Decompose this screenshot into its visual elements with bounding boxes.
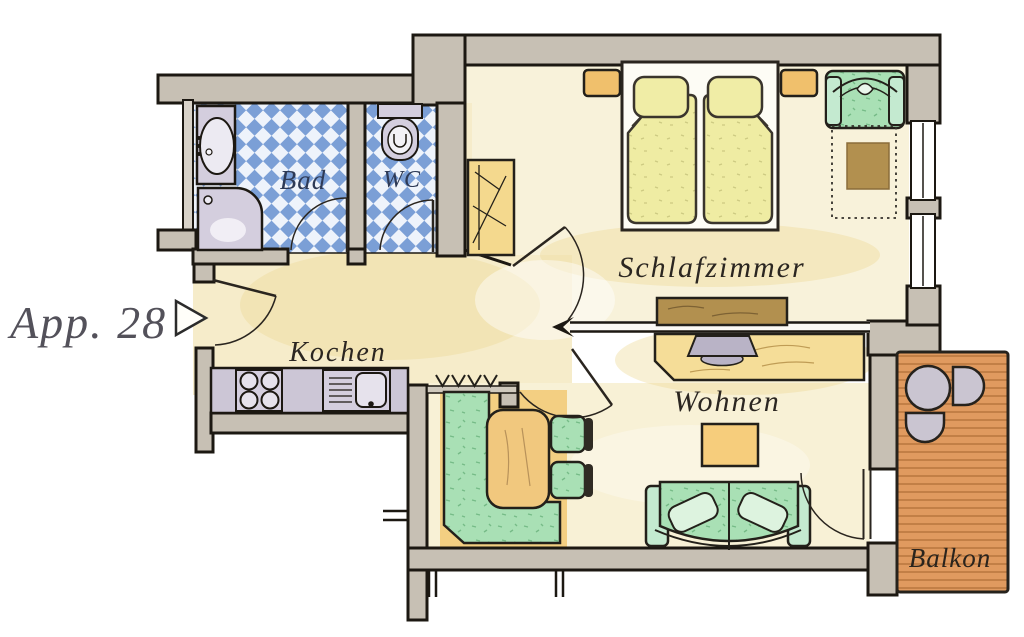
- shower-highlight: [210, 218, 246, 242]
- stub-bottom-2: [556, 570, 563, 597]
- wall-door-jamb-bad-wc: [348, 249, 365, 264]
- wall-bottom-right-block: [868, 543, 897, 595]
- sink-drain: [206, 149, 212, 155]
- wall-bottom: [408, 548, 897, 570]
- wohnen-label: Wohnen: [673, 385, 781, 418]
- armchair-armrest: [826, 77, 841, 125]
- faucet-dot: [197, 136, 201, 140]
- wall-living-left: [408, 385, 427, 620]
- balkon-label: Balkon: [909, 543, 991, 573]
- wall-left-step: [158, 230, 196, 250]
- pillow-left: [634, 77, 688, 117]
- toilet-bowl: [388, 126, 412, 154]
- wall-step-corner: [413, 35, 465, 105]
- nightstand-left: [584, 70, 620, 96]
- wall-bad-wc-divider: [348, 103, 365, 253]
- faucet-dot: [197, 144, 201, 148]
- chair-backrest: [584, 418, 593, 451]
- wall-right-lower-pier: [907, 286, 940, 325]
- wall-bedroom-left: [437, 103, 465, 256]
- sideboard-icon: [657, 298, 787, 325]
- dining-chair: [551, 416, 585, 452]
- floor-plan-drawing: Bad WC Kochen Schlafzimmer Wohnen Balkon…: [0, 0, 1024, 637]
- wall-top-left: [158, 75, 420, 103]
- bad-label: Bad: [280, 165, 327, 195]
- stub-bottom-1: [429, 570, 436, 597]
- wall-left-thin: [183, 100, 193, 236]
- dining-table: [487, 410, 549, 508]
- kochen-label: Kochen: [288, 337, 387, 368]
- shower-drain: [204, 196, 212, 204]
- balcony-chair: [906, 413, 944, 442]
- faucet-dot: [197, 152, 201, 156]
- tv-desk: [655, 334, 864, 380]
- chair-backrest: [584, 464, 593, 497]
- side-table: [847, 143, 889, 189]
- floor-plan: Bad WC Kochen Schlafzimmer Wohnen Balkon…: [0, 0, 1024, 637]
- balcony-table: [906, 366, 950, 410]
- schlafzimmer-label: Schlafzimmer: [618, 251, 805, 284]
- stub-left: [383, 511, 408, 520]
- pillow-right: [708, 77, 762, 117]
- apartment-number-label: App. 28: [7, 297, 167, 348]
- stove-burner: [241, 392, 258, 409]
- sink-icon: [200, 118, 234, 174]
- wall-below-counter: [211, 413, 427, 433]
- dining-chair: [551, 462, 585, 498]
- kitchen-faucet: [368, 401, 374, 407]
- toilet-tank: [378, 104, 422, 118]
- nightstand-right: [781, 70, 817, 96]
- stove-burner: [262, 392, 279, 409]
- tv-icon: [688, 336, 757, 356]
- stove-burner: [262, 373, 279, 390]
- armchair-armrest: [889, 77, 904, 125]
- balcony-chair: [953, 367, 984, 405]
- stove-burner: [241, 373, 258, 390]
- coffee-table: [702, 424, 758, 466]
- wc-label: WC: [383, 167, 421, 193]
